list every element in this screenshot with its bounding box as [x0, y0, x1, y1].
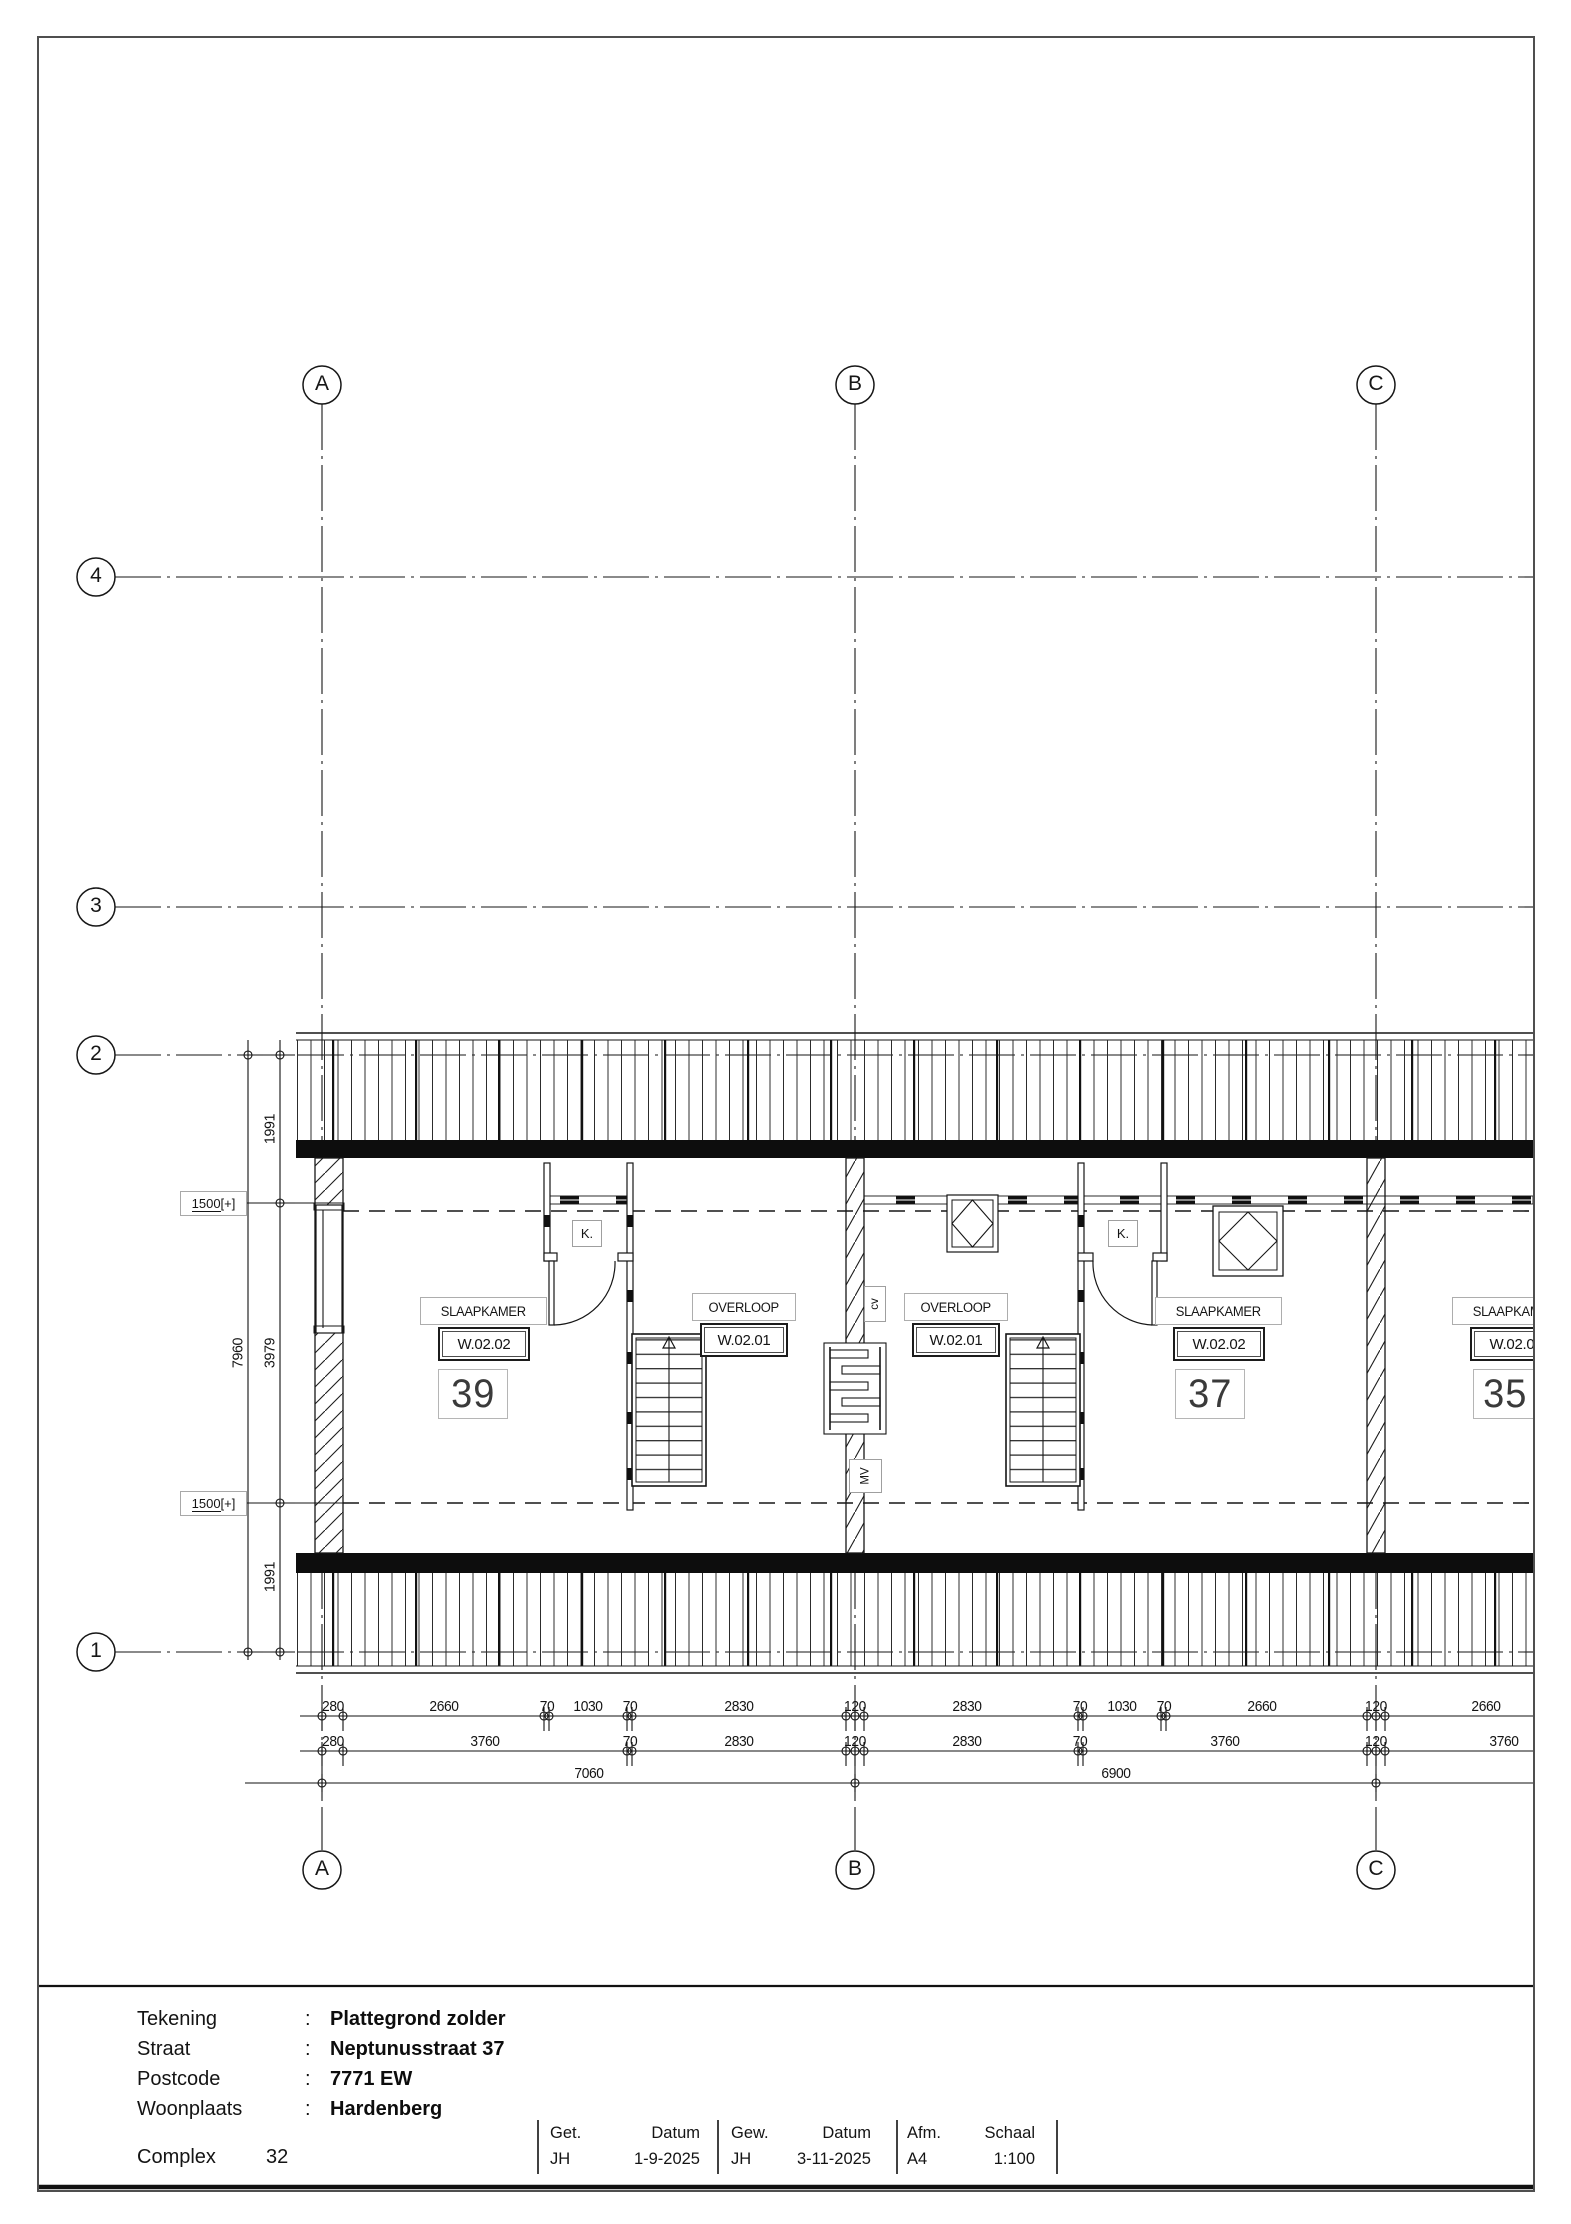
dim-label: 2660 [429, 1698, 458, 1715]
cv-unit-label: cv [864, 1286, 886, 1322]
roof-top [296, 1033, 1533, 1158]
room-37-number: 37 [1188, 1372, 1232, 1417]
dim-label: 120 [844, 1733, 866, 1750]
room-35-number-box: 35 [1473, 1369, 1535, 1419]
room-35-number: 35 [1483, 1372, 1527, 1417]
stamp-schaal-label: Schaal [950, 2124, 1035, 2143]
room-39-number: 39 [451, 1372, 495, 1417]
stamp-schaal-value: 1:100 [950, 2150, 1035, 2169]
drawing-sheet-border: A B C 4 3 2 1 A B C SLAAPKAMER W.02.02 3… [37, 36, 1535, 2192]
room-37-name: SLAAPKAMER [1176, 1304, 1261, 1319]
grid-row-2: 2 [90, 1042, 102, 1066]
field-tekening-value: Plattegrond zolder [330, 2008, 506, 2031]
dim-label: 70 [623, 1698, 638, 1715]
dim-label: 2830 [952, 1698, 981, 1715]
height-suffix: [+] [221, 1196, 236, 1211]
dim-label: 3760 [1489, 1733, 1518, 1750]
dim-label: 120 [844, 1698, 866, 1715]
room-37-code: W.02.02 [1177, 1331, 1261, 1357]
dim-label: 3760 [1210, 1733, 1239, 1750]
dim-label: 70 [1073, 1698, 1088, 1715]
dim-label-vertical: 3979 [262, 1338, 279, 1368]
field-woonplaats-label: Woonplaats [137, 2098, 242, 2121]
window [316, 1205, 342, 1333]
grid-row-1: 1 [90, 1639, 102, 1663]
stamp-gew-label: Gew. [731, 2124, 769, 2143]
door-room-39 [549, 1261, 615, 1325]
room-37-name-box: SLAAPKAMER [1155, 1297, 1282, 1325]
grid-row-4: 4 [90, 564, 102, 588]
closet-label-left: K. [572, 1220, 602, 1247]
colon: : [305, 2068, 311, 2091]
cv-text: cv [869, 1298, 881, 1310]
stamp-datum-label: Datum [766, 2124, 871, 2143]
dim-label: 3760 [470, 1733, 499, 1750]
landing-right-code-box: W.02.01 [912, 1323, 1000, 1357]
room-37-number-box: 37 [1175, 1369, 1245, 1419]
room-39-code: W.02.02 [442, 1331, 526, 1357]
dim-label-vertical: 7960 [230, 1338, 247, 1368]
height-suffix: [+] [221, 1496, 236, 1511]
colon: : [305, 2098, 311, 2121]
grid-col-A-top: A [315, 372, 329, 396]
dim-label: 2830 [724, 1733, 753, 1750]
stamp-get-datum: 1-9-2025 [595, 2150, 700, 2169]
landing-left-code: W.02.01 [704, 1327, 784, 1353]
height-marker-top: 1500[+] [180, 1191, 247, 1216]
dim-label: 280 [322, 1733, 344, 1750]
grid-col-C-bottom: C [1368, 1857, 1383, 1881]
stamp-afm-value: A4 [907, 2150, 927, 2169]
grid-col-A-bottom: A [315, 1857, 329, 1881]
complex-label: Complex [137, 2146, 216, 2169]
dim-label: 70 [1073, 1733, 1088, 1750]
landing-right-name: OVERLOOP [921, 1300, 991, 1315]
field-postcode-label: Postcode [137, 2068, 220, 2091]
field-postcode-value: 7771 EW [330, 2068, 412, 2091]
stamp-gew-value: JH [731, 2150, 751, 2169]
colon: : [305, 2008, 311, 2031]
room-39-name: SLAAPKAMER [441, 1304, 526, 1319]
dim-label: 70 [1157, 1698, 1172, 1715]
grid-col-C-top: C [1368, 372, 1383, 396]
dim-label: 120 [1365, 1698, 1387, 1715]
stair-right [1006, 1334, 1080, 1486]
height-marker-bottom: 1500[+] [180, 1491, 247, 1516]
grid-row-3: 3 [90, 894, 102, 918]
grid-col-B-top: B [848, 372, 862, 396]
field-tekening-label: Tekening [137, 2008, 217, 2031]
north-facade-wall [296, 1140, 1533, 1158]
room-39-number-box: 39 [438, 1369, 508, 1419]
room-35-name: SLAAPKAMER [1473, 1304, 1535, 1319]
stair-left [632, 1334, 706, 1486]
field-woonplaats-value: Hardenberg [330, 2098, 442, 2121]
dimension-ticks [239, 1051, 1389, 1798]
dim-label: 2830 [724, 1698, 753, 1715]
complex-number: 32 [266, 2146, 288, 2169]
colon: : [305, 2038, 311, 2061]
dim-label: 1030 [573, 1698, 602, 1715]
dim-label: 70 [623, 1733, 638, 1750]
stamp-datum-label: Datum [595, 2124, 700, 2143]
height-value: 1500 [192, 1196, 221, 1212]
mv-text: MV [860, 1467, 872, 1484]
dim-label: 2660 [1247, 1698, 1276, 1715]
landing-left-name-box: OVERLOOP [692, 1293, 796, 1321]
dim-label: 120 [1365, 1733, 1387, 1750]
party-wall-C [1367, 1158, 1385, 1553]
landing-left-code-box: W.02.01 [700, 1323, 788, 1357]
room-35-name-box: SLAAPKAMER [1452, 1297, 1535, 1325]
landing-right-name-box: OVERLOOP [904, 1293, 1008, 1321]
exterior-wall-left [314, 1158, 344, 1553]
dim-label: 2660 [1471, 1698, 1500, 1715]
field-straat-value: Neptunusstraat 37 [330, 2038, 505, 2061]
skylight-landing [947, 1195, 998, 1252]
door-room-37 [1093, 1261, 1157, 1325]
room-35-code: W.02.02 [1474, 1331, 1535, 1357]
room-39-name-box: SLAAPKAMER [420, 1297, 547, 1325]
dim-label: 280 [322, 1698, 344, 1715]
dim-label-vertical: 1991 [262, 1114, 279, 1144]
drawing-sheet: A B C 4 3 2 1 A B C SLAAPKAMER W.02.02 3… [37, 36, 1535, 2192]
dim-label-vertical: 1991 [262, 1562, 279, 1592]
stamp-get-value: JH [550, 2150, 570, 2169]
south-facade-wall [296, 1553, 1533, 1573]
field-straat-label: Straat [137, 2038, 190, 2061]
closet-label-right: K. [1108, 1220, 1138, 1247]
stamp-gew-datum: 3-11-2025 [766, 2150, 871, 2169]
dim-label: 70 [540, 1698, 555, 1715]
dim-label: 7060 [574, 1765, 603, 1782]
grid-col-B-bottom: B [848, 1857, 862, 1881]
dim-label: 1030 [1107, 1698, 1136, 1715]
room-39-code-box: W.02.02 [438, 1327, 530, 1361]
dim-label: 6900 [1101, 1765, 1130, 1782]
heater-unit [824, 1343, 886, 1434]
room-37-code-box: W.02.02 [1173, 1327, 1265, 1361]
landing-right-code: W.02.01 [916, 1327, 996, 1353]
stamp-get-label: Get. [550, 2124, 581, 2143]
dim-label: 2830 [952, 1733, 981, 1750]
mv-unit-label: MV [849, 1459, 882, 1493]
height-value: 1500 [192, 1496, 221, 1512]
room-35-code-box: W.02.02 [1470, 1327, 1535, 1361]
roof-bottom [296, 1553, 1533, 1673]
skylight-bedroom-37 [1213, 1206, 1283, 1276]
stamp-afm-label: Afm. [907, 2124, 941, 2143]
landing-left-name: OVERLOOP [709, 1300, 779, 1315]
knee-wall-hatched [544, 1196, 1533, 1204]
